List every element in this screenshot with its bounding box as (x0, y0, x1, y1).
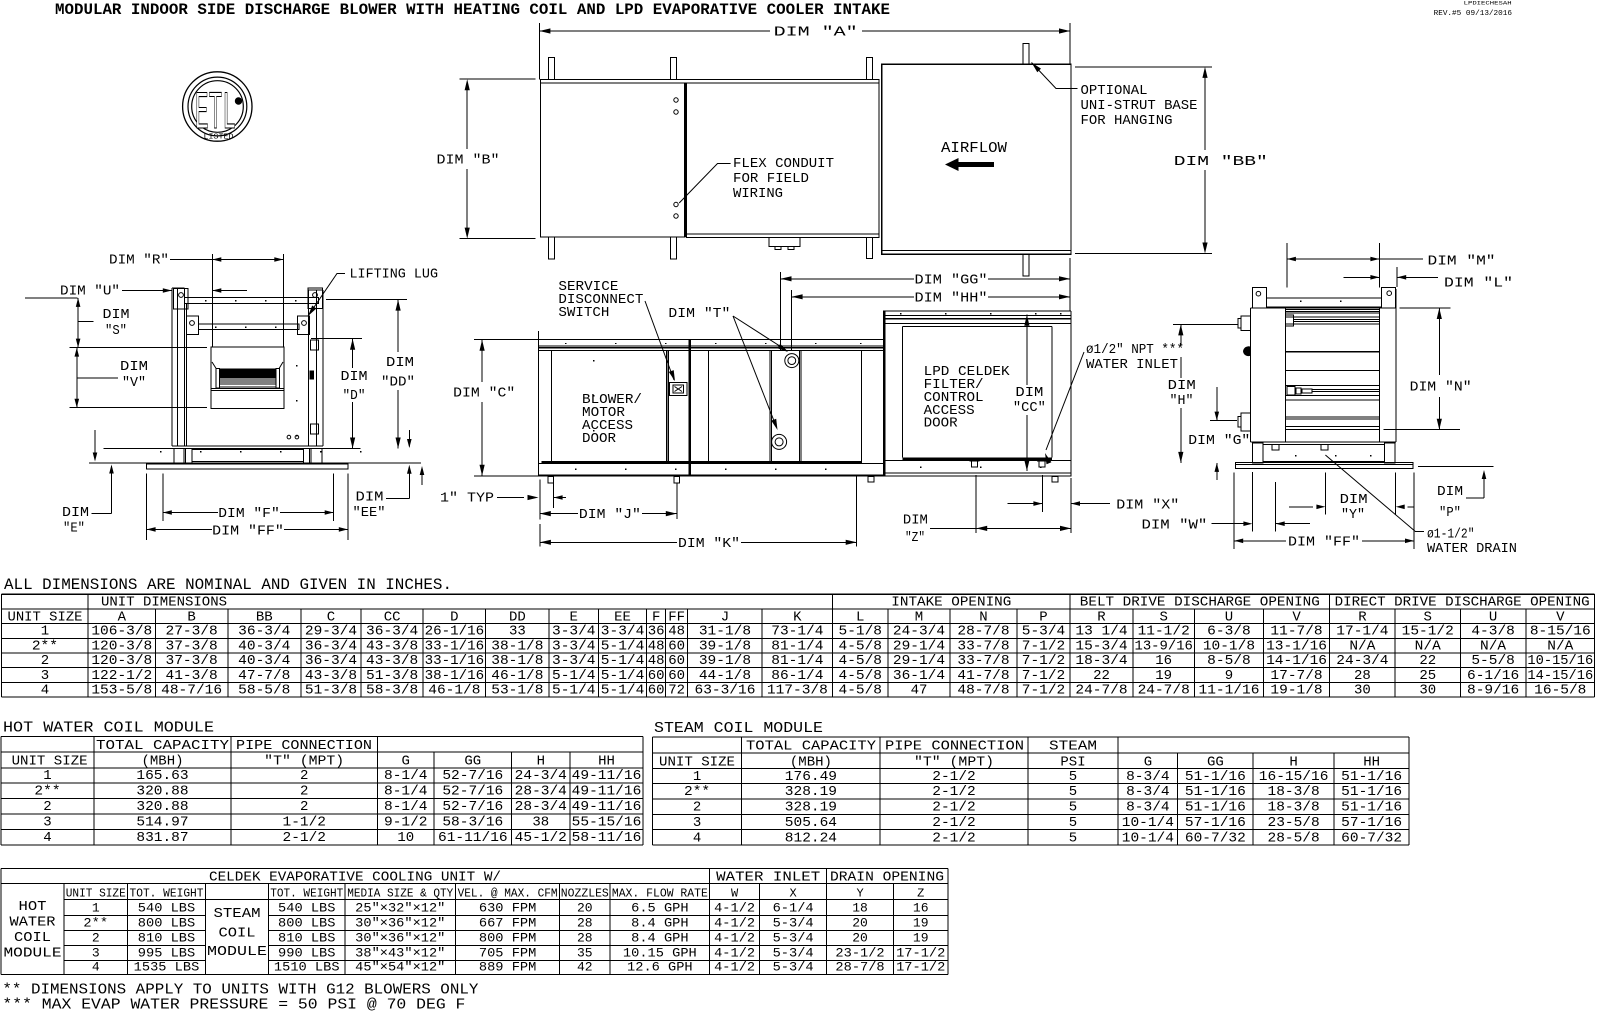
svg-text:UNIT SIZE: UNIT SIZE (659, 754, 735, 770)
svg-text:51-1/16: 51-1/16 (1185, 784, 1246, 800)
svg-text:28-3/4: 28-3/4 (515, 799, 567, 815)
svg-text:33-7/8: 33-7/8 (957, 653, 1009, 669)
svg-text:2: 2 (693, 800, 701, 816)
svg-text:26-1/16: 26-1/16 (425, 624, 485, 640)
svg-text:4-1/2: 4-1/2 (714, 946, 755, 961)
svg-text:DIM "G": DIM "G" (1188, 433, 1250, 449)
svg-text:STEAM: STEAM (1049, 739, 1097, 755)
svg-text:DIM "C": DIM "C" (453, 386, 515, 402)
svg-text:990 LBS: 990 LBS (278, 946, 336, 961)
svg-text:WATER: WATER (10, 916, 56, 931)
svg-text:GG: GG (1207, 754, 1224, 770)
svg-text:5: 5 (1069, 769, 1077, 785)
svg-text:1510 LBS: 1510 LBS (274, 960, 340, 975)
svg-text:WATER INLET: WATER INLET (716, 871, 820, 886)
svg-text:800 LBS: 800 LBS (138, 916, 196, 931)
svg-text:N/A: N/A (1349, 638, 1376, 654)
svg-text:36-1/4: 36-1/4 (893, 668, 945, 684)
svg-text:4-1/2: 4-1/2 (714, 931, 755, 946)
svg-text:FOR FIELD: FOR FIELD (733, 171, 809, 187)
svg-text:53-1/8: 53-1/8 (491, 683, 543, 699)
svg-text:995 LBS: 995 LBS (138, 946, 196, 961)
svg-text:DIM: DIM (386, 355, 414, 371)
svg-text:CELDEK EVAPORATIVE COOLING UNI: CELDEK EVAPORATIVE COOLING UNIT W/ (209, 871, 501, 886)
svg-text:29-3/4: 29-3/4 (305, 624, 357, 640)
svg-text:51-1/16: 51-1/16 (1185, 800, 1246, 816)
svg-text:DIM: DIM (356, 490, 384, 506)
svg-text:4: 4 (92, 960, 100, 975)
svg-text:60-7/32: 60-7/32 (1185, 830, 1246, 846)
svg-text:540 LBS: 540 LBS (138, 901, 196, 916)
svg-text:320.88: 320.88 (136, 784, 188, 800)
svg-text:20: 20 (852, 916, 868, 931)
svg-text:12.6 GPH: 12.6 GPH (627, 960, 693, 975)
svg-text:HH: HH (1363, 754, 1380, 770)
svg-text:6-3/8: 6-3/8 (1207, 624, 1251, 640)
svg-text:5-1/4: 5-1/4 (601, 668, 645, 684)
svg-text:38-1/8: 38-1/8 (491, 653, 543, 669)
svg-text:3-3/4: 3-3/4 (601, 624, 645, 640)
svg-text:"EE": "EE" (353, 505, 386, 521)
svg-text:540 LBS: 540 LBS (278, 901, 336, 916)
svg-text:810 LBS: 810 LBS (278, 931, 336, 946)
svg-text:N/A: N/A (1547, 638, 1574, 654)
svg-text:60: 60 (668, 638, 685, 654)
svg-text:17-1/2: 17-1/2 (896, 960, 945, 975)
svg-text:36: 36 (648, 624, 665, 640)
svg-text:47-7/8: 47-7/8 (238, 668, 290, 684)
svg-text:6.5 GPH: 6.5 GPH (631, 901, 688, 916)
svg-text:46-1/8: 46-1/8 (428, 683, 480, 699)
svg-text:7-1/2: 7-1/2 (1022, 638, 1066, 654)
svg-text:2: 2 (300, 784, 308, 800)
svg-text:5-3/4: 5-3/4 (773, 931, 814, 946)
svg-text:PSI: PSI (1060, 754, 1085, 770)
svg-text:81-1/4: 81-1/4 (771, 638, 823, 654)
svg-text:"S": "S" (105, 323, 127, 339)
svg-text:45"×54"×12": 45"×54"×12" (355, 960, 445, 975)
svg-text:2**: 2** (34, 784, 60, 800)
svg-text:UNIT SIZE: UNIT SIZE (66, 886, 126, 900)
svg-text:DIM: DIM (1437, 484, 1463, 500)
svg-text:TOTAL CAPACITY: TOTAL CAPACITY (96, 738, 230, 754)
svg-text:"CC": "CC" (1013, 400, 1046, 416)
svg-text:REV.#5 09/13/2016: REV.#5 09/13/2016 (1434, 10, 1513, 18)
svg-text:5-3/4: 5-3/4 (773, 946, 814, 961)
svg-text:HOT: HOT (19, 900, 47, 915)
svg-text:38-1/16: 38-1/16 (425, 668, 485, 684)
svg-text:39-1/8: 39-1/8 (699, 653, 751, 669)
svg-text:51-3/8: 51-3/8 (366, 668, 418, 684)
svg-text:4-5/8: 4-5/8 (839, 683, 883, 699)
svg-text:DRAIN OPENING: DRAIN OPENING (830, 871, 944, 886)
svg-text:39-1/8: 39-1/8 (699, 638, 751, 654)
svg-text:60: 60 (668, 668, 685, 684)
svg-text:8-1/4: 8-1/4 (384, 784, 428, 800)
svg-text:60: 60 (648, 683, 665, 699)
svg-text:18-3/8: 18-3/8 (1268, 784, 1320, 800)
svg-text:38: 38 (532, 815, 549, 831)
svg-text:9-1/2: 9-1/2 (384, 815, 428, 831)
svg-text:57-1/16: 57-1/16 (1341, 815, 1402, 831)
svg-text:55-15/16: 55-15/16 (572, 815, 642, 831)
svg-text:STEAM: STEAM (214, 907, 261, 922)
svg-text:18: 18 (852, 901, 868, 916)
svg-text:667 FPM: 667 FPM (479, 916, 536, 931)
svg-text:DIM: DIM (903, 513, 928, 529)
svg-text:28: 28 (1354, 668, 1371, 684)
svg-text:10.15 GPH: 10.15 GPH (623, 946, 697, 961)
svg-text:N/A: N/A (1415, 638, 1442, 654)
svg-text:11-7/8: 11-7/8 (1270, 624, 1322, 640)
svg-text:DIM "J": DIM "J" (579, 507, 641, 523)
svg-text:38"×43"×12": 38"×43"×12" (355, 946, 445, 961)
svg-text:19: 19 (913, 916, 929, 931)
svg-text:38-1/8: 38-1/8 (491, 638, 543, 654)
svg-text:320.88: 320.88 (136, 799, 188, 815)
svg-text:2-1/2: 2-1/2 (932, 784, 976, 800)
svg-text:NOZZLES: NOZZLES (561, 886, 609, 900)
svg-text:DIM: DIM (1340, 492, 1368, 508)
svg-text:35: 35 (577, 946, 593, 961)
svg-text:DIM "R": DIM "R" (109, 253, 169, 269)
svg-text:51-3/8: 51-3/8 (305, 683, 357, 699)
svg-text:5: 5 (1069, 815, 1077, 831)
svg-text:"H": "H" (1170, 393, 1194, 409)
svg-text:13 1/4: 13 1/4 (1075, 624, 1127, 640)
svg-text:DIM "L": DIM "L" (1444, 276, 1513, 292)
svg-text:5-1/4: 5-1/4 (601, 638, 645, 654)
svg-text:20: 20 (852, 931, 868, 946)
svg-text:52-7/16: 52-7/16 (442, 799, 503, 815)
svg-text:TOT. WEIGHT: TOT. WEIGHT (270, 886, 343, 900)
svg-text:51-1/16: 51-1/16 (1341, 800, 1402, 816)
svg-text:H: H (1289, 754, 1297, 770)
svg-text:H: H (537, 753, 545, 769)
svg-text:2**: 2** (684, 784, 710, 800)
svg-text:3-3/4: 3-3/4 (552, 624, 596, 640)
svg-text:11-1/2: 11-1/2 (1138, 624, 1190, 640)
svg-text:106-3/8: 106-3/8 (91, 624, 152, 640)
svg-text:514.97: 514.97 (136, 815, 188, 831)
svg-text:5-3/4: 5-3/4 (773, 916, 814, 931)
svg-text:810 LBS: 810 LBS (138, 931, 196, 946)
svg-text:2-1/2: 2-1/2 (932, 769, 976, 785)
svg-text:800 LBS: 800 LBS (278, 916, 336, 931)
svg-text:27-3/8: 27-3/8 (166, 624, 218, 640)
svg-text:51-1/16: 51-1/16 (1341, 769, 1402, 785)
svg-text:DIM "B": DIM "B" (437, 153, 500, 169)
svg-text:7-1/2: 7-1/2 (1022, 653, 1066, 669)
svg-text:17-1/4: 17-1/4 (1336, 624, 1388, 640)
svg-text:ALL DIMENSIONS ARE NOMINAL AND: ALL DIMENSIONS ARE NOMINAL AND GIVEN IN … (4, 576, 452, 594)
svg-text:24-3/4: 24-3/4 (1336, 653, 1388, 669)
svg-text:42: 42 (577, 960, 593, 975)
svg-text:TOT. WEIGHT: TOT. WEIGHT (130, 886, 204, 900)
svg-text:30"×36"×12": 30"×36"×12" (355, 931, 445, 946)
svg-text:MODULAR INDOOR SIDE DISCHARGE: MODULAR INDOOR SIDE DISCHARGE BLOWER WIT… (55, 1, 890, 19)
svg-text:58-3/16: 58-3/16 (442, 815, 503, 831)
svg-text:49-11/16: 49-11/16 (572, 784, 642, 800)
svg-text:8-5/8: 8-5/8 (1207, 653, 1251, 669)
svg-text:11-1/16: 11-1/16 (1199, 683, 1260, 699)
svg-text:DIM: DIM (120, 359, 148, 375)
svg-text:7-1/2: 7-1/2 (1022, 683, 1066, 699)
svg-text:28-5/8: 28-5/8 (1268, 830, 1320, 846)
svg-text:MEDIA SIZE & QTY: MEDIA SIZE & QTY (347, 886, 453, 900)
svg-text:16: 16 (1155, 653, 1172, 669)
svg-text:4-1/2: 4-1/2 (714, 901, 755, 916)
svg-text:DIM "A": DIM "A" (774, 25, 858, 41)
svg-text:48: 48 (648, 638, 665, 654)
svg-text:5: 5 (1069, 784, 1077, 800)
svg-text:N/A: N/A (1480, 638, 1507, 654)
svg-text:Z: Z (917, 886, 924, 900)
svg-text:DIM: DIM (341, 369, 368, 385)
svg-text:2: 2 (41, 653, 49, 669)
svg-text:1: 1 (43, 768, 51, 784)
svg-text:33-1/16: 33-1/16 (425, 638, 485, 654)
svg-text:30: 30 (1419, 683, 1436, 699)
svg-text:705 FPM: 705 FPM (479, 946, 536, 961)
svg-text:WATER INLET: WATER INLET (1086, 357, 1178, 373)
svg-text:28: 28 (577, 931, 593, 946)
svg-text:8-1/4: 8-1/4 (384, 768, 428, 784)
svg-text:MODULE: MODULE (4, 947, 62, 962)
svg-text:Y: Y (856, 886, 863, 900)
svg-text:36-3/4: 36-3/4 (238, 624, 290, 640)
svg-text:4: 4 (693, 830, 701, 846)
svg-text:33-1/16: 33-1/16 (425, 653, 485, 669)
svg-text:328.19: 328.19 (785, 800, 837, 816)
svg-text:889 FPM: 889 FPM (479, 960, 536, 975)
svg-text:176.49: 176.49 (785, 769, 837, 785)
svg-text:DIM "HH": DIM "HH" (915, 290, 988, 306)
svg-text:4-1/2: 4-1/2 (714, 916, 755, 931)
svg-text:"DD": "DD" (381, 375, 415, 391)
svg-text:17-7/8: 17-7/8 (1270, 668, 1322, 684)
svg-text:2**: 2** (83, 916, 108, 931)
svg-text:41-3/8: 41-3/8 (166, 668, 218, 684)
svg-text:5-3/4: 5-3/4 (1022, 624, 1066, 640)
svg-text:48-7/8: 48-7/8 (957, 683, 1009, 699)
svg-text:10-1/8: 10-1/8 (1203, 638, 1255, 654)
svg-text:57-1/16: 57-1/16 (1185, 815, 1246, 831)
svg-text:STEAM COIL MODULE: STEAM COIL MODULE (654, 720, 823, 737)
svg-text:2-1/2: 2-1/2 (283, 830, 327, 846)
svg-text:43-3/8: 43-3/8 (305, 668, 357, 684)
svg-text:8-3/4: 8-3/4 (1126, 800, 1170, 816)
svg-text:X: X (789, 886, 796, 900)
svg-text:19: 19 (1155, 668, 1172, 684)
svg-text:8.4 GPH: 8.4 GPH (631, 931, 688, 946)
svg-text:5: 5 (1069, 830, 1077, 846)
svg-text:2-1/2: 2-1/2 (932, 815, 976, 831)
svg-text:10-15/16: 10-15/16 (1527, 653, 1593, 669)
svg-text:24-3/4: 24-3/4 (893, 624, 945, 640)
svg-text:DIRECT DRIVE DISCHARGE OPENING: DIRECT DRIVE DISCHARGE OPENING (1335, 595, 1590, 611)
svg-text:48: 48 (668, 624, 685, 640)
svg-text:3: 3 (693, 815, 701, 831)
svg-text:25"×32"×12": 25"×32"×12" (355, 901, 445, 916)
svg-text:8-9/16: 8-9/16 (1467, 683, 1519, 699)
svg-text:46-1/8: 46-1/8 (491, 668, 543, 684)
svg-text:30: 30 (1354, 683, 1371, 699)
svg-text:28: 28 (577, 916, 593, 931)
svg-text:25: 25 (1419, 668, 1436, 684)
svg-text:LPDIECHESAH: LPDIECHESAH (1464, 0, 1512, 7)
svg-text:DIM: DIM (1015, 385, 1043, 401)
svg-text:60: 60 (668, 653, 685, 669)
svg-text:4-1/2: 4-1/2 (714, 960, 755, 975)
svg-text:17-1/2: 17-1/2 (896, 946, 945, 961)
svg-text:28-3/4: 28-3/4 (515, 784, 567, 800)
svg-text:DIM "BB": DIM "BB" (1174, 154, 1268, 170)
svg-text:41-7/8: 41-7/8 (957, 668, 1009, 684)
svg-text:5-3/4: 5-3/4 (773, 960, 814, 975)
svg-text:29-1/4: 29-1/4 (893, 638, 945, 654)
svg-text:4-5/8: 4-5/8 (839, 653, 883, 669)
svg-text:5-1/8: 5-1/8 (839, 624, 883, 640)
svg-text:30"×36"×12": 30"×36"×12" (355, 916, 445, 931)
svg-text:3: 3 (92, 946, 100, 961)
svg-text:86-1/4: 86-1/4 (771, 668, 823, 684)
svg-text:DIM "F": DIM "F" (218, 506, 280, 522)
svg-text:FOR HANGING: FOR HANGING (1081, 113, 1173, 129)
svg-text:UNIT SIZE: UNIT SIZE (12, 753, 88, 769)
svg-text:61-11/16: 61-11/16 (438, 830, 508, 846)
svg-text:6-1/4: 6-1/4 (773, 901, 814, 916)
svg-text:120-3/8: 120-3/8 (91, 653, 152, 669)
svg-text:3: 3 (43, 815, 51, 831)
svg-text:73-1/4: 73-1/4 (771, 624, 823, 640)
svg-text:3-3/4: 3-3/4 (552, 638, 596, 654)
svg-text:505.64: 505.64 (785, 815, 837, 831)
svg-text:COIL: COIL (219, 927, 256, 942)
svg-text:20: 20 (577, 901, 593, 916)
svg-text:2-1/2: 2-1/2 (932, 800, 976, 816)
svg-text:UNIT DIMENSIONS: UNIT DIMENSIONS (101, 595, 227, 611)
svg-text:16: 16 (913, 901, 929, 916)
svg-text:2: 2 (300, 768, 308, 784)
svg-text:29-1/4: 29-1/4 (893, 653, 945, 669)
svg-text:81-1/4: 81-1/4 (771, 653, 823, 669)
svg-text:2: 2 (300, 799, 308, 815)
svg-text:49-11/16: 49-11/16 (572, 799, 642, 815)
svg-text:PIPE CONNECTION: PIPE CONNECTION (236, 738, 372, 754)
svg-text:52-7/16: 52-7/16 (442, 784, 503, 800)
svg-text:51-1/16: 51-1/16 (1185, 769, 1246, 785)
svg-text:4-3/8: 4-3/8 (1471, 624, 1515, 640)
svg-text:COIL: COIL (14, 931, 51, 946)
svg-text:10: 10 (397, 830, 414, 846)
svg-text:HOT WATER COIL MODULE: HOT WATER COIL MODULE (3, 720, 214, 737)
svg-text:"V": "V" (122, 375, 146, 391)
svg-text:2**: 2** (32, 638, 58, 654)
svg-text:4-5/8: 4-5/8 (839, 668, 883, 684)
svg-text:1: 1 (92, 901, 100, 916)
svg-text:DIM "M": DIM "M" (1428, 254, 1496, 270)
svg-text:(MBH): (MBH) (790, 754, 832, 770)
svg-text:63-3/16: 63-3/16 (695, 683, 756, 699)
svg-text:44-1/8: 44-1/8 (699, 668, 751, 684)
svg-text:4: 4 (43, 830, 51, 846)
svg-text:DIM "W": DIM "W" (1142, 518, 1208, 534)
svg-text:1: 1 (41, 624, 49, 640)
svg-text:19: 19 (913, 931, 929, 946)
svg-text:13-9/16: 13-9/16 (1135, 638, 1193, 654)
svg-text:DIM "FF": DIM "FF" (212, 523, 284, 539)
svg-text:10-1/4: 10-1/4 (1122, 815, 1174, 831)
svg-text:8.4 GPH: 8.4 GPH (631, 916, 688, 931)
svg-text:40-3/4: 40-3/4 (238, 653, 290, 669)
svg-text:43-3/8: 43-3/8 (366, 638, 418, 654)
svg-text:630 FPM: 630 FPM (479, 901, 536, 916)
svg-text:MAX. FLOW RATE: MAX. FLOW RATE (612, 886, 708, 900)
svg-text:SWITCH: SWITCH (558, 305, 609, 321)
svg-text:WATER DRAIN: WATER DRAIN (1427, 541, 1517, 557)
svg-text:72: 72 (668, 683, 685, 699)
svg-text:120-3/8: 120-3/8 (91, 638, 152, 654)
svg-text:4: 4 (41, 683, 49, 699)
svg-text:*** MAX EVAP WATER PRESSURE =: *** MAX EVAP WATER PRESSURE = 50 PSI @ 7… (2, 997, 465, 1011)
svg-text:(MBH): (MBH) (141, 753, 183, 769)
svg-text:60: 60 (648, 668, 665, 684)
svg-text:831.87: 831.87 (136, 830, 188, 846)
svg-text:AIRFLOW: AIRFLOW (941, 141, 1007, 157)
svg-text:49-11/16: 49-11/16 (572, 768, 642, 784)
svg-text:33: 33 (509, 624, 526, 640)
svg-text:9: 9 (1225, 668, 1233, 684)
svg-text:4-5/8: 4-5/8 (839, 638, 883, 654)
svg-text:33-7/8: 33-7/8 (957, 638, 1009, 654)
svg-text:DIM: DIM (62, 505, 89, 521)
svg-text:153-5/8: 153-5/8 (91, 683, 152, 699)
svg-text:W: W (731, 886, 739, 900)
svg-text:10-1/4: 10-1/4 (1122, 830, 1174, 846)
svg-text:2: 2 (92, 931, 100, 946)
svg-text:5-5/8: 5-5/8 (1471, 653, 1515, 669)
svg-text:19-1/8: 19-1/8 (1270, 683, 1322, 699)
svg-text:OPTIONAL: OPTIONAL (1081, 83, 1148, 99)
svg-text:"P": "P" (1439, 505, 1461, 521)
svg-text:3: 3 (41, 668, 49, 684)
svg-text:LIFTING LUG: LIFTING LUG (350, 267, 439, 283)
svg-text:18-3/4: 18-3/4 (1075, 653, 1127, 669)
svg-text:DOOR: DOOR (582, 431, 617, 447)
svg-text:FLEX CONDUIT: FLEX CONDUIT (733, 156, 834, 172)
svg-text:DIM "X": DIM "X" (1116, 498, 1179, 514)
svg-text:GG: GG (464, 753, 481, 769)
svg-text:G: G (401, 753, 409, 769)
svg-text:LISTED: LISTED (204, 134, 234, 142)
svg-text:48: 48 (648, 653, 665, 669)
svg-text:8-3/4: 8-3/4 (1126, 784, 1170, 800)
svg-text:DIM: DIM (103, 307, 130, 323)
svg-text:PIPE CONNECTION: PIPE CONNECTION (885, 739, 1024, 755)
svg-text:8-15/16: 8-15/16 (1530, 624, 1591, 640)
svg-text:BELT DRIVE DISCHARGE OPENING: BELT DRIVE DISCHARGE OPENING (1080, 595, 1320, 611)
svg-text:ø1/2" NPT ***: ø1/2" NPT *** (1086, 342, 1184, 358)
svg-text:15-3/4: 15-3/4 (1075, 638, 1127, 654)
svg-text:DIM "U": DIM "U" (60, 284, 120, 300)
svg-text:58-5/8: 58-5/8 (238, 683, 290, 699)
svg-text:24-7/8: 24-7/8 (1138, 683, 1190, 699)
svg-text:5-1/4: 5-1/4 (601, 653, 645, 669)
svg-text:"E": "E" (63, 521, 85, 537)
svg-text:328.19: 328.19 (785, 784, 837, 800)
svg-text:48-7/16: 48-7/16 (161, 683, 222, 699)
